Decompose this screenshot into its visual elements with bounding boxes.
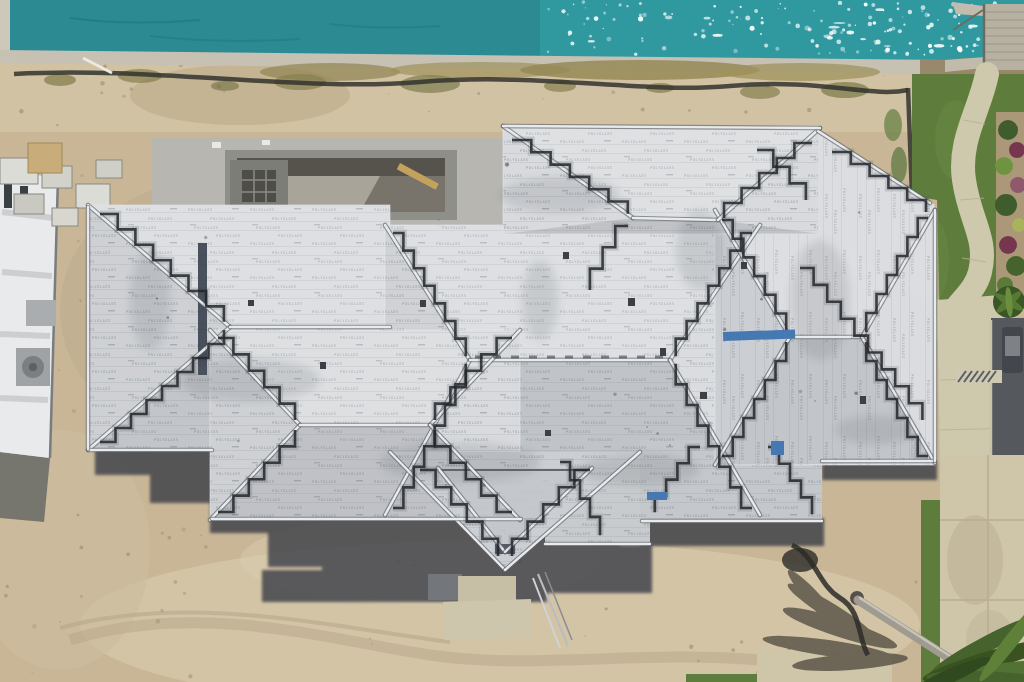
fence-fabric-pile (782, 548, 818, 572)
equipment-top (1005, 336, 1020, 356)
rooftop-unit (26, 300, 56, 326)
palm-crown (993, 286, 1024, 318)
gravel-pad (0, 452, 50, 522)
photo-canvas: POLYGLASS POLYGLASS POLYGLASS POLYGLASS … (0, 0, 1024, 682)
ac-fan-hub (29, 363, 37, 371)
grate-strip (956, 370, 1002, 383)
aerial-construction-photo: POLYGLASS POLYGLASS POLYGLASS POLYGLASS … (0, 0, 1024, 682)
plywood-sheet (28, 143, 62, 173)
seawall-corner (0, 0, 10, 52)
skylight (4, 182, 12, 208)
